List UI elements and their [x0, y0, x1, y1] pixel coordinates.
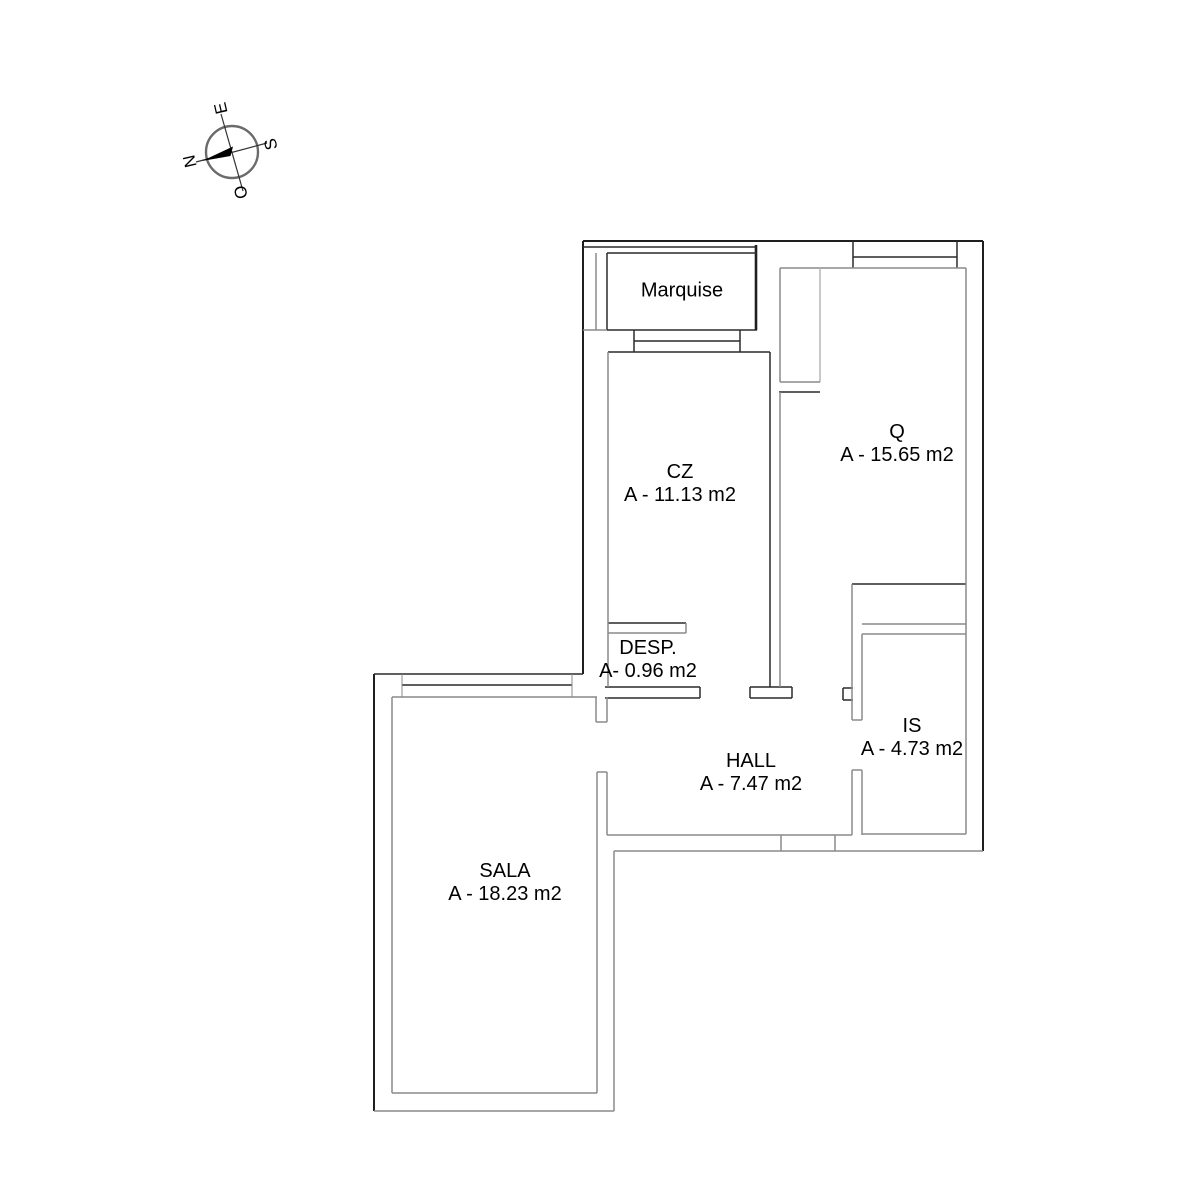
- room-area: A - 18.23 m2: [448, 883, 561, 906]
- floor-plan-drawing: E N S O: [0, 0, 1200, 1200]
- room-label-sala: SALA A - 18.23 m2: [448, 860, 561, 906]
- compass-label-south: S: [260, 137, 281, 152]
- room-name: CZ: [624, 461, 736, 484]
- room-name: DESP.: [599, 637, 697, 660]
- compass-label-north: N: [179, 153, 200, 169]
- compass-rose: E N S O: [179, 101, 281, 201]
- room-label-is: IS A - 4.73 m2: [861, 715, 963, 761]
- room-label-cz: CZ A - 11.13 m2: [624, 461, 736, 507]
- room-label-q: Q A - 15.65 m2: [840, 421, 953, 467]
- room-label-hall: HALL A - 7.47 m2: [700, 750, 802, 796]
- room-label-marquise: Marquise: [641, 280, 723, 303]
- room-name: Q: [840, 421, 953, 444]
- room-area: A- 0.96 m2: [599, 660, 697, 683]
- room-name: IS: [861, 715, 963, 738]
- room-label-desp: DESP. A- 0.96 m2: [599, 637, 697, 683]
- room-name: Marquise: [641, 280, 723, 303]
- room-area: A - 7.47 m2: [700, 773, 802, 796]
- compass-label-west: O: [230, 184, 251, 201]
- compass-label-east: E: [210, 101, 231, 116]
- room-area: A - 11.13 m2: [624, 484, 736, 507]
- floor-plan-page: E N S O: [0, 0, 1200, 1200]
- room-area: A - 4.73 m2: [861, 738, 963, 761]
- room-area: A - 15.65 m2: [840, 444, 953, 467]
- room-name: SALA: [448, 860, 561, 883]
- room-name: HALL: [700, 750, 802, 773]
